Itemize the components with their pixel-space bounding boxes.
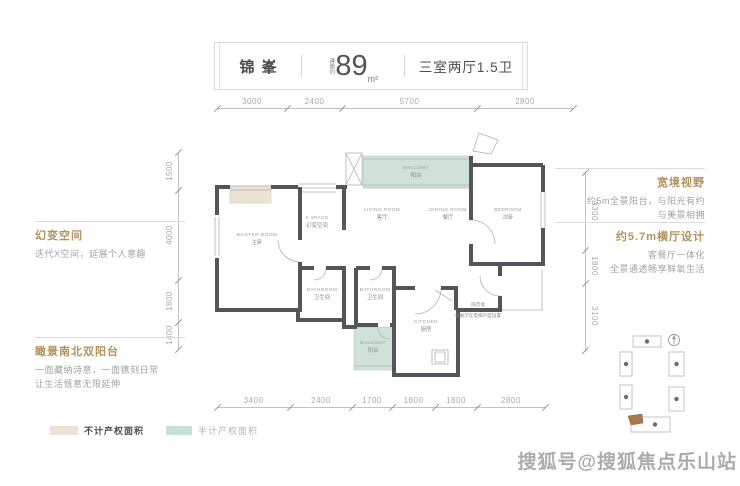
unit-header: 锦峯 建面约 89 m² 三室两厅1.5卫 [214,42,528,90]
legend-label-beige: 不计产权面积 [84,424,144,437]
dim-left-0: 1500 [165,154,175,188]
annotation-rule [35,221,185,222]
room-label-xspace-en: X SPACE [305,215,328,221]
room-label-bedroom-en: BEDROOM [494,207,522,213]
annotation-title: 约5.7m横厅设计 [555,228,705,244]
annotation-text: 让生活惬意无限延伸 [35,378,195,392]
dimension-chain-top: 3000 2400 5700 2800 [217,108,573,109]
unit-location-marker [628,414,643,425]
balcony-top-area [363,156,470,187]
dim-bottom-1: 2400 [290,396,352,405]
dim-top-3: 2800 [477,97,573,106]
legend-swatch-green [166,426,192,435]
dim-bottom-2: 1700 [352,396,392,405]
plan-note-line1: 隔音墙 [471,301,485,308]
unit-name: 锦峯 [215,43,301,89]
dim-bottom-4: 1800 [435,396,477,405]
room-label-balcony-top-cn: 阳台 [411,171,422,179]
room-labels: MASTER ROOM 主卧 X SPACE 幻变空间 LIVING ROOM … [237,165,522,354]
annotation-left-top: 幻变空间 迭代X空间，延展个人意趣 [35,221,185,262]
annotation-text: 与美景相拥 [555,209,705,223]
room-label-bath1-en: BATHROOM [307,287,338,293]
annotation-text: 客餐厅一体化 [555,249,705,263]
compass-icon [669,335,680,346]
area-prefix: 建面约 [328,58,334,75]
room-label-master-en: MASTER ROOM [237,232,278,238]
dim-bottom-5: 2800 [477,396,545,405]
floorplan-page: 锦峯 建面约 89 m² 三室两厅1.5卫 3000 2400 5700 280… [0,0,740,486]
room-label-bath2-en: BATHROOM [360,287,391,293]
room-label-living-en: LIVING ROOM [364,207,400,213]
dim-right-2: 3100 [589,299,599,333]
room-label-dining-en: DINING ROOM [429,207,466,213]
room-label-balcony-bottom-cn: 阳台 [368,346,379,354]
dim-top-1: 2400 [287,97,342,106]
header-inner-line-right [522,43,523,89]
room-label-living-cn: 客厅 [377,213,388,221]
annotation-left-bottom: 瞰景南北双阳台 一面藏纳诗意，一面镌刻日常 让生活惬意无限延伸 [35,337,195,391]
dim-bottom-3: 1800 [392,396,435,405]
annotation-title: 宽境视野 [555,174,705,190]
annotation-rule [555,168,705,169]
annotation-text: 约5m全景阳台，与阳光有约 [555,195,705,209]
bay-window-area [230,186,271,203]
watermark: 搜狐号@搜狐焦点乐山站 [517,447,737,474]
dimension-chain-bottom: 3400 2400 1700 1800 1800 2800 [217,407,545,408]
area-unit: m² [368,74,379,84]
room-label-kitchen-cn: 厨房 [421,325,432,333]
annotation-text: 一面藏纳诗意，一面镌刻日常 [35,364,195,378]
area-value: 89 [335,52,367,81]
site-plan [608,328,718,436]
room-label-xspace-cn: 幻变空间 [306,221,328,229]
dim-left-2: 1800 [165,284,175,318]
plan-note-line2: 仅展示在电梯户型设置 [455,312,501,319]
legend: 不计产权面积 半计产权面积 [50,424,258,437]
annotation-text: 迭代X空间，延展个人意趣 [35,248,185,262]
room-label-bedroom-cn: 次卧 [503,213,514,221]
room-label-dining-cn: 餐厅 [443,213,454,221]
room-label-master-cn: 主卧 [252,238,263,246]
legend-swatch-beige [50,426,78,435]
annotation-text: 全景通透畅享鲜氧生活 [555,263,705,277]
annotation-right-bottom: 约5.7m横厅设计 客餐厅一体化 全景通透畅享鲜氧生活 [555,222,705,276]
room-label-kitchen-en: KITCHEN [414,319,438,325]
dim-bottom-0: 3400 [217,396,290,405]
legend-label-green: 半计产权面积 [198,424,258,437]
floorplan-drawing: MASTER ROOM 主卧 X SPACE 幻变空间 LIVING ROOM … [210,120,580,395]
annotation-rule [555,222,705,223]
dim-top-0: 3000 [217,97,287,106]
annotation-right-top: 宽境视野 约5m全景阳台，与阳光有约 与美景相拥 [555,168,705,222]
annotation-title: 幻变空间 [35,227,185,243]
dim-top-2: 5700 [342,97,477,106]
header-inner-line-left [219,43,220,89]
unit-area: 建面约 89 m² [302,43,404,89]
room-label-balcony-bottom-en: BALCONY [360,340,386,346]
annotation-title: 瞰景南北双阳台 [35,343,195,359]
room-label-balcony-top-en: BALCONY [403,165,429,171]
unit-layout: 三室两厅1.5卫 [405,43,527,89]
annotation-rule [35,337,185,338]
room-label-bath1-cn: 卫生间 [314,293,330,301]
room-label-bath2-cn: 卫生间 [367,293,383,301]
